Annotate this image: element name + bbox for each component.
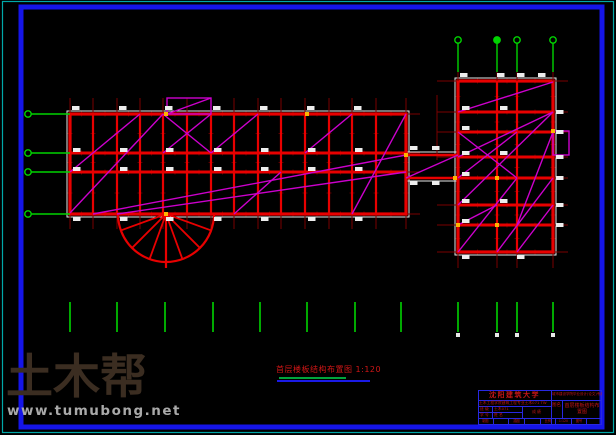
slab-label [462, 255, 470, 259]
node-marker [456, 223, 460, 227]
title-block: 沈阳建筑大学 土木工程学院建筑工程专业土木071 TW 城市建设学院毕业设计(论… [478, 390, 602, 425]
slab-label [166, 148, 174, 152]
tb-bottom-cell: 图号 [571, 418, 587, 425]
node-marker [495, 223, 499, 227]
slab-label [73, 148, 81, 152]
slab-label [432, 181, 440, 185]
stair-spoke [166, 214, 211, 230]
slab-label [354, 106, 362, 110]
slab-label [497, 73, 505, 77]
slab-label [500, 106, 508, 110]
slab-label [214, 217, 222, 221]
drawing-caption: 首层楼板结构布置图 1:120 [276, 364, 381, 375]
slab-label [556, 223, 564, 227]
stair-spoke [121, 214, 166, 230]
slab-label [460, 73, 468, 77]
slab-label [410, 181, 418, 185]
tb-university: 沈阳建筑大学 [478, 390, 551, 400]
slab-label [166, 167, 174, 171]
brace-line [70, 114, 140, 172]
slab-label [462, 172, 470, 176]
slab-label [462, 106, 470, 110]
tb-org-line: 城市建设学院毕业设计(论文)专用纸 [552, 390, 602, 400]
node-marker [404, 153, 408, 157]
caption-underline-green [279, 377, 346, 379]
stair-spoke [150, 214, 166, 259]
slab-label [500, 199, 508, 203]
tb-vline-3 [492, 406, 493, 418]
brace-line [406, 155, 458, 178]
slab-label [556, 176, 564, 180]
watermark-logo: 土木帮 [6, 353, 147, 403]
brace-rect [553, 131, 569, 155]
cad-viewport: 土木帮 www.tumubong.net 首层楼板结构布置图 1:120 沈阳建… [0, 0, 616, 435]
slab-label [432, 146, 440, 150]
node-marker [305, 112, 309, 116]
tb-bottom-cell [586, 418, 602, 425]
slab-label [462, 219, 470, 223]
slab-label [307, 106, 315, 110]
slab-label [261, 217, 269, 221]
slab-label [410, 146, 418, 150]
dimension-marker [456, 333, 460, 337]
axis-bubble [25, 211, 31, 217]
tb-bottom-cell [524, 418, 540, 425]
slab-label [120, 167, 128, 171]
stair-spoke [132, 214, 166, 248]
node-marker [495, 176, 499, 180]
slab-label [213, 106, 221, 110]
dimension-marker [495, 333, 499, 337]
slab-label [556, 110, 564, 114]
slab-label [166, 217, 174, 221]
node-marker [453, 176, 457, 180]
axis-bubble [514, 37, 520, 43]
brace-line [167, 98, 211, 114]
slab-label [462, 126, 470, 130]
slab-label [556, 130, 564, 134]
node-marker [164, 112, 168, 116]
tb-bottom-cell: 比例 [540, 418, 556, 425]
slab-label [517, 255, 525, 259]
slab-label [119, 106, 127, 110]
slab-label [308, 148, 316, 152]
slab-label [261, 148, 269, 152]
slab-outline-right [455, 78, 556, 255]
slab-label [308, 217, 316, 221]
slab-label [214, 167, 222, 171]
dimension-marker [515, 333, 519, 337]
brace-line [458, 178, 517, 252]
slab-label [73, 167, 81, 171]
slab-label [538, 73, 546, 77]
tb-grade-label: 成 绩 [522, 406, 551, 418]
node-marker [164, 212, 168, 216]
slab-label [73, 217, 81, 221]
slab-label [165, 106, 173, 110]
axis-bubble [455, 37, 461, 43]
tb-drawing-name-label: 图名 [552, 400, 561, 418]
slab-label [355, 217, 363, 221]
tb-bottom-cell: 制图 [478, 418, 493, 425]
slab-label [462, 151, 470, 155]
dimension-marker [551, 333, 555, 337]
axis-bubble [25, 111, 31, 117]
slab-label [120, 217, 128, 221]
watermark-url: www.tumubong.net [7, 403, 181, 419]
slab-label [260, 106, 268, 110]
slab-label [261, 167, 269, 171]
axis-bubble [25, 150, 31, 156]
slab-label [500, 151, 508, 155]
caption-underline-blue [277, 380, 370, 383]
slab-label [355, 167, 363, 171]
tb-drawing-name: 首层楼板结构布置图 [563, 400, 601, 418]
axis-bubble [25, 169, 31, 175]
slab-label [517, 73, 525, 77]
slab-label [308, 167, 316, 171]
tb-bottom-cell: 描图 [508, 418, 524, 425]
axis-bubble [550, 37, 556, 43]
slab-label [355, 148, 363, 152]
slab-label [72, 106, 80, 110]
slab-label [214, 148, 222, 152]
slab-label [462, 199, 470, 203]
node-marker [551, 129, 555, 133]
slab-label [556, 203, 564, 207]
slab-label [120, 148, 128, 152]
axis-bubble [494, 37, 500, 43]
tb-bottom-row: 制图 描图 比例 1:120 图号 [478, 418, 602, 425]
tb-bottom-cell [493, 418, 509, 425]
brace-line [458, 112, 553, 157]
tb-bottom-cell: 1:120 [555, 418, 571, 425]
slab-label [556, 155, 564, 159]
